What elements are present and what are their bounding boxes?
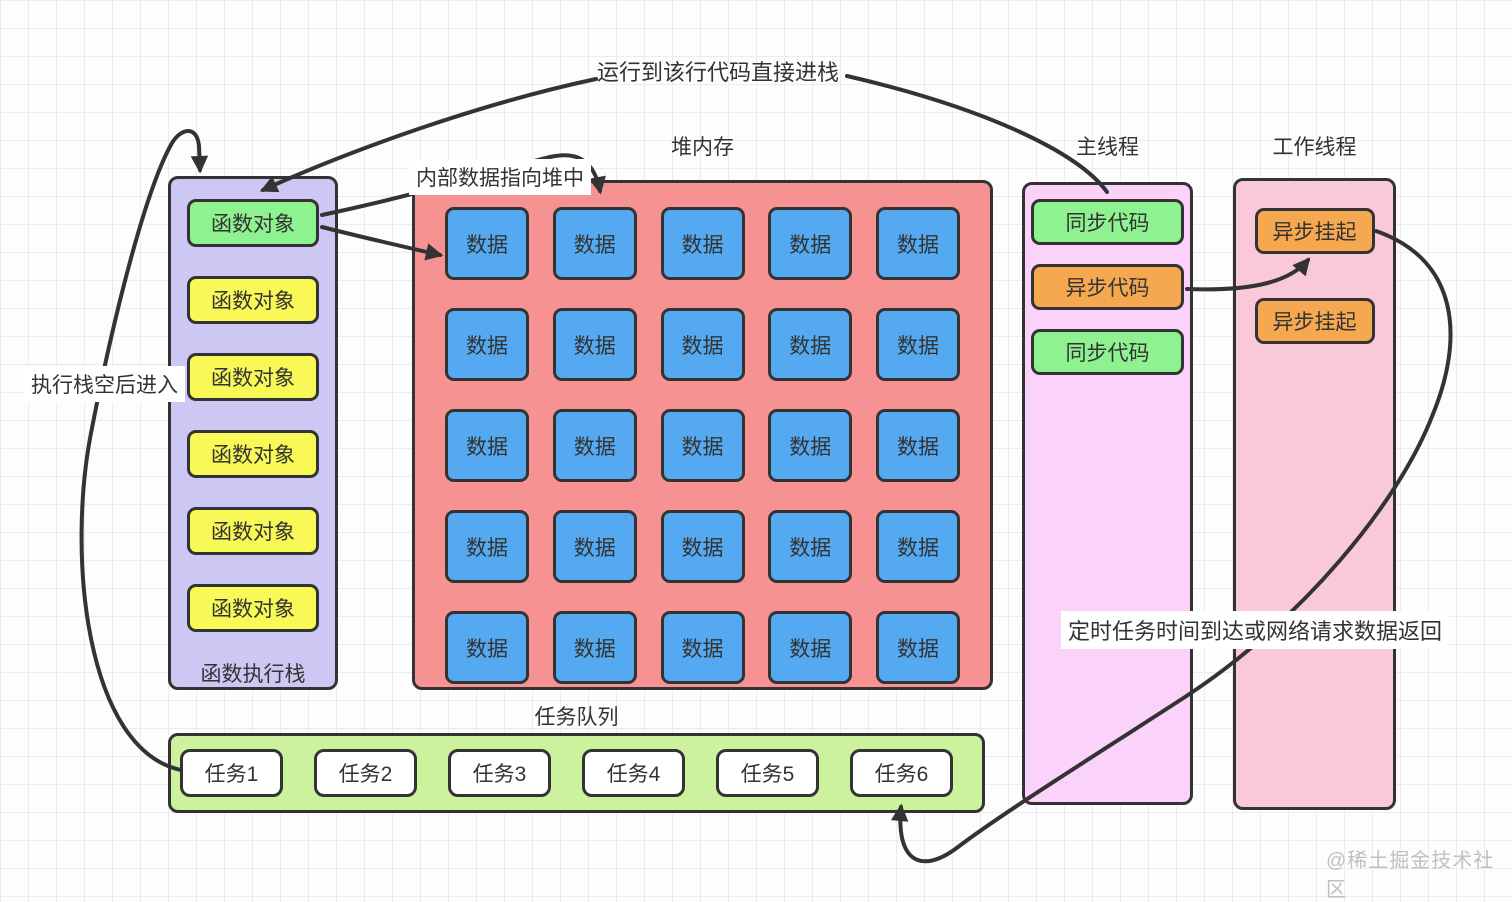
arrow-funcobj-to-data1 xyxy=(322,227,440,255)
annotation-timer-or-network-return: 定时任务时间到达或网络请求数据返回 xyxy=(1061,611,1449,649)
watermark: @稀土掘金技术社区 xyxy=(1326,844,1512,902)
arrow-async-code-to-suspend xyxy=(1187,260,1308,289)
annotation-stack-empty-enter: 执行栈空后进入 xyxy=(24,366,185,402)
line-sync-code-to-note xyxy=(847,76,1107,192)
arrow-suspend-to-task6 xyxy=(900,231,1450,861)
arrows-layer xyxy=(0,0,1512,889)
annotation-data-points-to-heap: 内部数据指向堆中 xyxy=(409,159,591,195)
annotation-run-to-line: 运行到该行代码直接进栈 xyxy=(597,55,839,87)
arrow-queue-to-stack xyxy=(82,131,200,770)
